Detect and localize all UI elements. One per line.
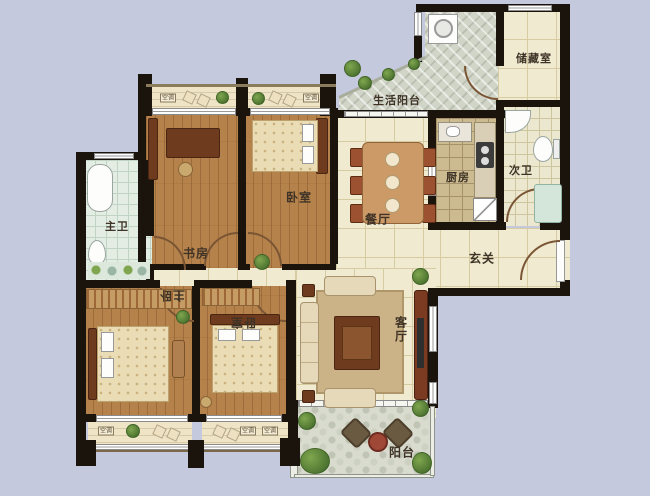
label-dining: 餐厅 (365, 211, 391, 228)
bath-decor (88, 262, 150, 279)
pillow (302, 124, 314, 142)
plant (358, 76, 372, 90)
label-bedroom-top: 卧室 (286, 189, 312, 206)
wall (286, 286, 296, 416)
window-living (429, 306, 437, 352)
wall-pillar (280, 438, 300, 466)
sliding-door-utility-balcony (344, 111, 428, 117)
wall-foyer-bottom (428, 288, 570, 296)
label-utility-balcony: 生活阳台 (373, 92, 421, 108)
bench (172, 340, 185, 378)
burner (481, 146, 489, 154)
sofa-top (324, 276, 376, 296)
plant (254, 254, 270, 270)
window (250, 108, 330, 115)
bookshelf (148, 118, 158, 180)
plate (385, 152, 400, 167)
wall (496, 100, 570, 107)
wall (282, 414, 296, 422)
label-bedroom-bottom: 卧室 (230, 315, 256, 332)
plant (300, 448, 330, 474)
dining-chair (422, 148, 436, 167)
label-study: 书房 (183, 245, 209, 262)
plant (412, 268, 429, 285)
label-master-bedroom: 主卧 (159, 288, 185, 305)
window (94, 153, 134, 159)
pillow (101, 358, 114, 378)
ac-tag: 空调 (240, 427, 256, 436)
window (414, 12, 422, 36)
label-foyer: 玄关 (469, 250, 495, 267)
burner (481, 157, 489, 165)
shower (534, 184, 562, 223)
toilet-tank (553, 139, 560, 159)
wall (496, 106, 504, 226)
ac-tag: 空调 (262, 427, 278, 436)
label-balcony: 阳台 (389, 444, 415, 461)
plant (216, 91, 229, 104)
bed-headboard (88, 328, 97, 400)
bay-edge (202, 450, 288, 452)
pillow (302, 146, 314, 164)
sofa-bottom (324, 388, 376, 408)
bathtub (87, 164, 113, 212)
bay-edge (88, 450, 192, 452)
window (206, 415, 282, 422)
pillow (101, 332, 114, 352)
label-storage: 储藏室 (516, 50, 552, 66)
wall (496, 10, 504, 66)
wall (138, 112, 146, 268)
desk-chair (178, 162, 193, 177)
ac-tag: 空调 (160, 94, 176, 103)
balcony-table (368, 432, 388, 452)
label-kitchen: 厨房 (446, 169, 470, 185)
sofa (300, 302, 319, 384)
dining-chair (422, 176, 436, 195)
side-table (302, 390, 315, 403)
window (96, 415, 188, 422)
wall (496, 222, 506, 230)
ac-tag: 空调 (303, 94, 319, 103)
wall (428, 118, 436, 152)
wall (282, 264, 336, 270)
toilet (533, 136, 553, 162)
wall (428, 110, 506, 118)
dining-chair (422, 204, 436, 223)
floor-plan: 空调 空调 空调 空调 空调 书房 卧室 主卫 生活阳台 储藏室 厨房 次卫 餐… (0, 0, 650, 496)
washing-machine-drum (434, 19, 453, 38)
label-master-bath: 主卫 (105, 218, 129, 234)
wall (330, 112, 338, 264)
wall (194, 280, 252, 288)
plant (176, 310, 190, 324)
plate (385, 175, 400, 190)
stool (200, 396, 212, 408)
window (152, 108, 236, 115)
bay-window-edge (146, 84, 336, 87)
plant (126, 424, 140, 438)
label-second-bath: 次卫 (509, 162, 533, 178)
plant (382, 68, 395, 81)
wall-pillar (188, 440, 204, 468)
plant (298, 412, 316, 430)
outer-wall-left (76, 152, 86, 458)
desk (166, 128, 220, 158)
wall (188, 414, 206, 422)
balcony-rail (294, 474, 434, 478)
wall-pillar (76, 440, 96, 466)
side-table (302, 284, 315, 297)
wall (84, 280, 160, 288)
tv (417, 318, 424, 368)
ac-tag: 空调 (98, 427, 114, 436)
wall (84, 414, 96, 422)
plant (412, 400, 429, 417)
coffee-table-top (342, 326, 372, 360)
window-storage (508, 5, 552, 11)
label-living: 客厅 (393, 316, 410, 344)
wall (540, 222, 570, 230)
plant (408, 58, 420, 70)
plant (344, 60, 361, 77)
wall (428, 222, 506, 230)
window-living (429, 382, 437, 404)
fridge (473, 198, 497, 221)
wall (238, 112, 246, 264)
plant (252, 92, 265, 105)
sink (446, 126, 460, 137)
wardrobe (202, 288, 260, 306)
